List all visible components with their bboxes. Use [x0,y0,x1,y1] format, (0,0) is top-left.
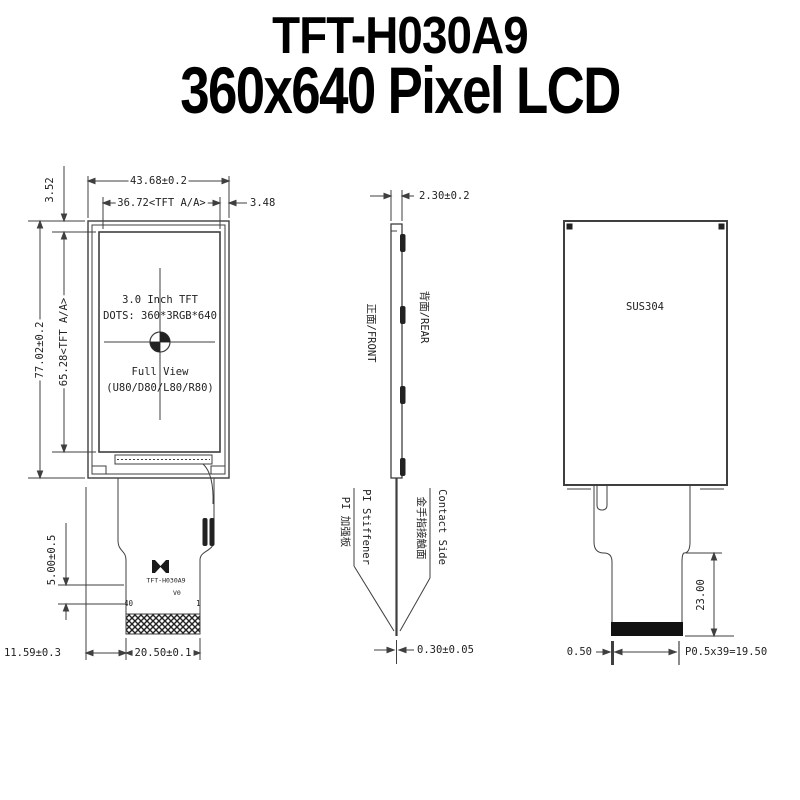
dim-outer-width: 43.68±0.2 [128,175,189,187]
dim-outer-height: 77.02±0.2 [34,320,46,381]
side-view-dimensions [370,190,414,664]
drawing-canvas [0,0,800,800]
screen-spec-size: 3.0 Inch TFT [122,294,198,306]
datum-target-icon [150,332,170,352]
fpc-model-label: TFT-H030A9 [146,578,185,585]
screen-spec-view: Full View [132,366,189,378]
front-view-drawing [88,221,229,634]
pin-number-left: 40 [124,600,133,608]
dim-tail-length: 23.00 [695,579,707,611]
dim-connector-width: 20.50±0.1 [133,647,194,659]
dim-thickness: 2.30±0.2 [419,190,470,202]
dim-fpc-thickness: 0.30±0.05 [417,644,474,656]
dim-active-area-height: 65.28<TFT A/A> [58,296,70,389]
brand-logo-icon [152,560,169,573]
datasheet-page: TFT-H030A9 360x640 Pixel LCD [0,0,800,800]
dim-pin-edge: 0.50 [556,646,592,658]
rear-view-drawing [564,221,727,636]
side-rear-label: 背面/REAR [418,291,430,344]
dim-bottom-offset: 11.59±0.3 [4,647,61,659]
front-view-dimensions [28,166,247,660]
stiffener-label-en: PI Stiffener [360,489,372,565]
side-view-drawing [354,224,430,636]
contact-side-label-cn: 金手指接触面 [415,497,427,560]
dim-fpc-drop: 5.00±0.5 [46,535,58,586]
contact-side-label-en: Contact Side [436,489,448,565]
material-label: SUS304 [626,301,664,313]
dim-top-gap: 3.52 [44,177,56,202]
side-front-label: 正面/FRONT [365,304,377,363]
stiffener-label-cn: PI 加强板 [339,497,351,547]
dim-right-gap: 3.48 [250,197,275,209]
pin-number-right: 1 [196,600,201,608]
screen-spec-dots: DOTS: 360*3RGB*640 [103,310,217,322]
dim-pin-pitch: P0.5x39=19.50 [685,646,767,658]
fpc-version-label: V0 [173,590,181,597]
screen-spec-angles: (U80/D80/L80/R80) [106,382,213,394]
dim-active-area-width: 36.72<TFT A/A> [115,197,208,209]
